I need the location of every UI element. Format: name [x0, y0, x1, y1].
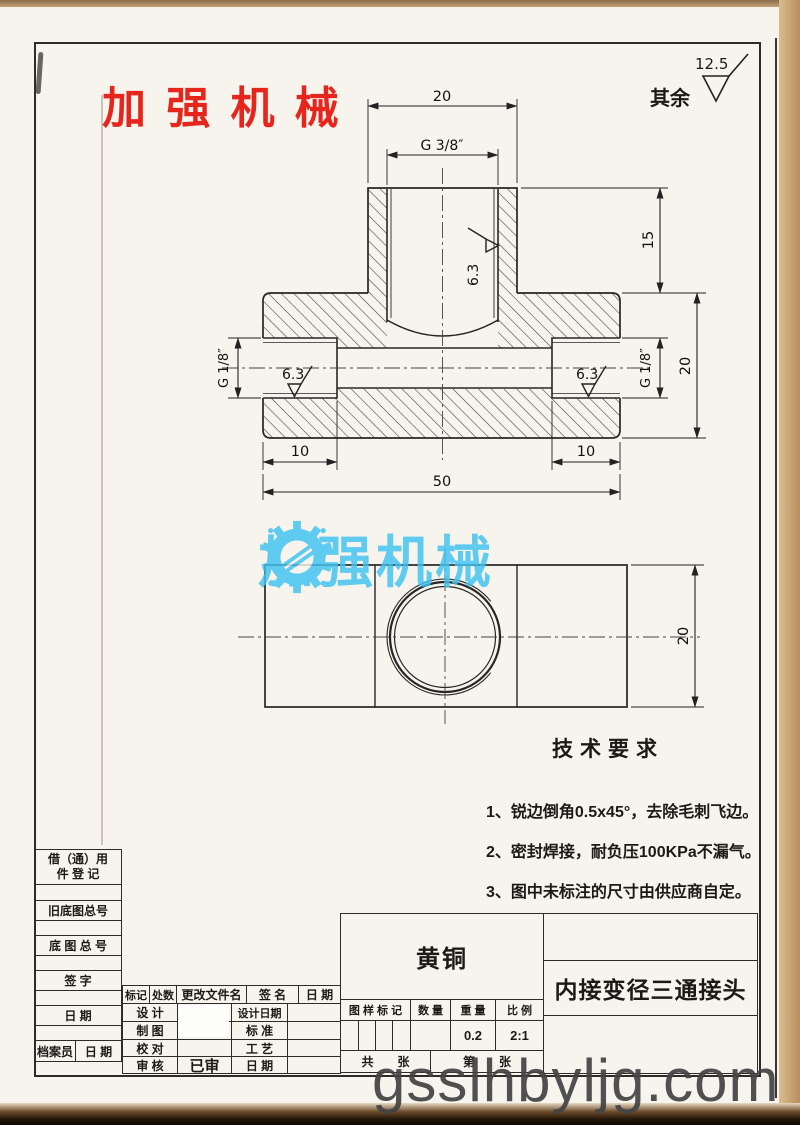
branch-wall-right-hatch	[498, 188, 517, 294]
cell-process-label: 工 艺	[231, 1039, 288, 1057]
cell-empty	[34, 955, 122, 971]
cell-standard-value	[287, 1021, 341, 1040]
dim-top-width: 20	[433, 89, 451, 105]
cell-check-label: 校 对	[122, 1039, 178, 1057]
dim-bore-depth-right: 10	[577, 444, 595, 460]
cell-standard-label: 标 准	[231, 1021, 288, 1040]
logo-watermark: 加强机械	[258, 518, 494, 599]
dim-bottom-view-height: 20	[676, 627, 692, 645]
cell-audit-label: 审 核	[122, 1056, 178, 1074]
branch-wall-left-hatch	[368, 188, 387, 294]
cell-rev-mark: 标记	[122, 985, 150, 1004]
dim-body-height: 20	[678, 357, 694, 375]
dim-bore-depth-left: 10	[291, 444, 309, 460]
cell-spec-weight: 重 量	[450, 999, 496, 1021]
borrow-record-line1: 借（通）用	[48, 852, 108, 867]
dim-side-thread-left: G 1/8″	[217, 348, 232, 388]
dim-side-thread-right: G 1/8″	[639, 348, 654, 388]
cell-part-name: 内接变径三通接头	[543, 960, 758, 1016]
cell-empty	[34, 884, 122, 901]
dim-branch-height: 15	[641, 231, 657, 249]
cell-archivist: 档案员	[34, 1040, 76, 1062]
whiteout-patch	[178, 1005, 229, 1037]
cell-design-date-label: 设计日期	[231, 1003, 288, 1022]
finish-left-bore: 6.3	[282, 367, 304, 383]
cell-empty	[34, 990, 122, 1006]
cell-rev-file: 更改文件名	[176, 985, 247, 1004]
finish-branch: 6.3	[466, 264, 482, 286]
cell-audited: 已审	[177, 1056, 232, 1074]
cell-material: 黄铜	[340, 913, 544, 1000]
cell-spec-mark: 图 样 标 记	[340, 999, 411, 1021]
cell-audit-date-value	[287, 1056, 341, 1074]
cell-base-no: 底 图 总 号	[34, 935, 122, 956]
dim-total-length: 50	[433, 474, 451, 490]
cell-audit-date-label: 日 期	[231, 1056, 288, 1074]
cell-rev-date: 日 期	[298, 985, 341, 1004]
scanned-drawing-sheet: { "stamp": { "text": "加 强 机 械", "color":…	[0, 0, 800, 1125]
finish-right-bore: 6.3	[576, 367, 598, 383]
cell-process-value	[287, 1039, 341, 1057]
cell-empty	[34, 920, 122, 936]
cell-right-upper	[543, 913, 758, 961]
site-watermark: gsslhbyljg.com	[372, 1046, 780, 1115]
cell-spec-scale: 比 例	[495, 999, 544, 1021]
cell-signature: 签 字	[34, 970, 122, 991]
cell-archivist-date: 日 期	[75, 1040, 122, 1062]
dim-top-thread: G 3/8″	[420, 138, 463, 154]
cell-rev-sign: 签 名	[246, 985, 299, 1004]
surface-note-value: 12.5	[695, 55, 728, 73]
cell-mark-sub1	[340, 1020, 359, 1051]
gear-logo-icon	[258, 518, 336, 596]
cell-design-date-value	[287, 1003, 341, 1022]
cell-date: 日 期	[34, 1005, 122, 1026]
cell-design-label: 设 计	[122, 1003, 178, 1022]
surface-roughness-symbol: 12.5	[693, 52, 759, 116]
cell-rev-count: 处数	[149, 985, 177, 1004]
cell-old-base-no: 旧底图总号	[34, 900, 122, 921]
cell-spec-qty: 数 量	[410, 999, 451, 1021]
cell-draft-label: 制 图	[122, 1021, 178, 1040]
cell-empty	[34, 1025, 122, 1041]
cell-borrow-record: 借（通）用 件 登 记	[34, 849, 122, 885]
borrow-record-line2: 件 登 记	[57, 867, 100, 882]
